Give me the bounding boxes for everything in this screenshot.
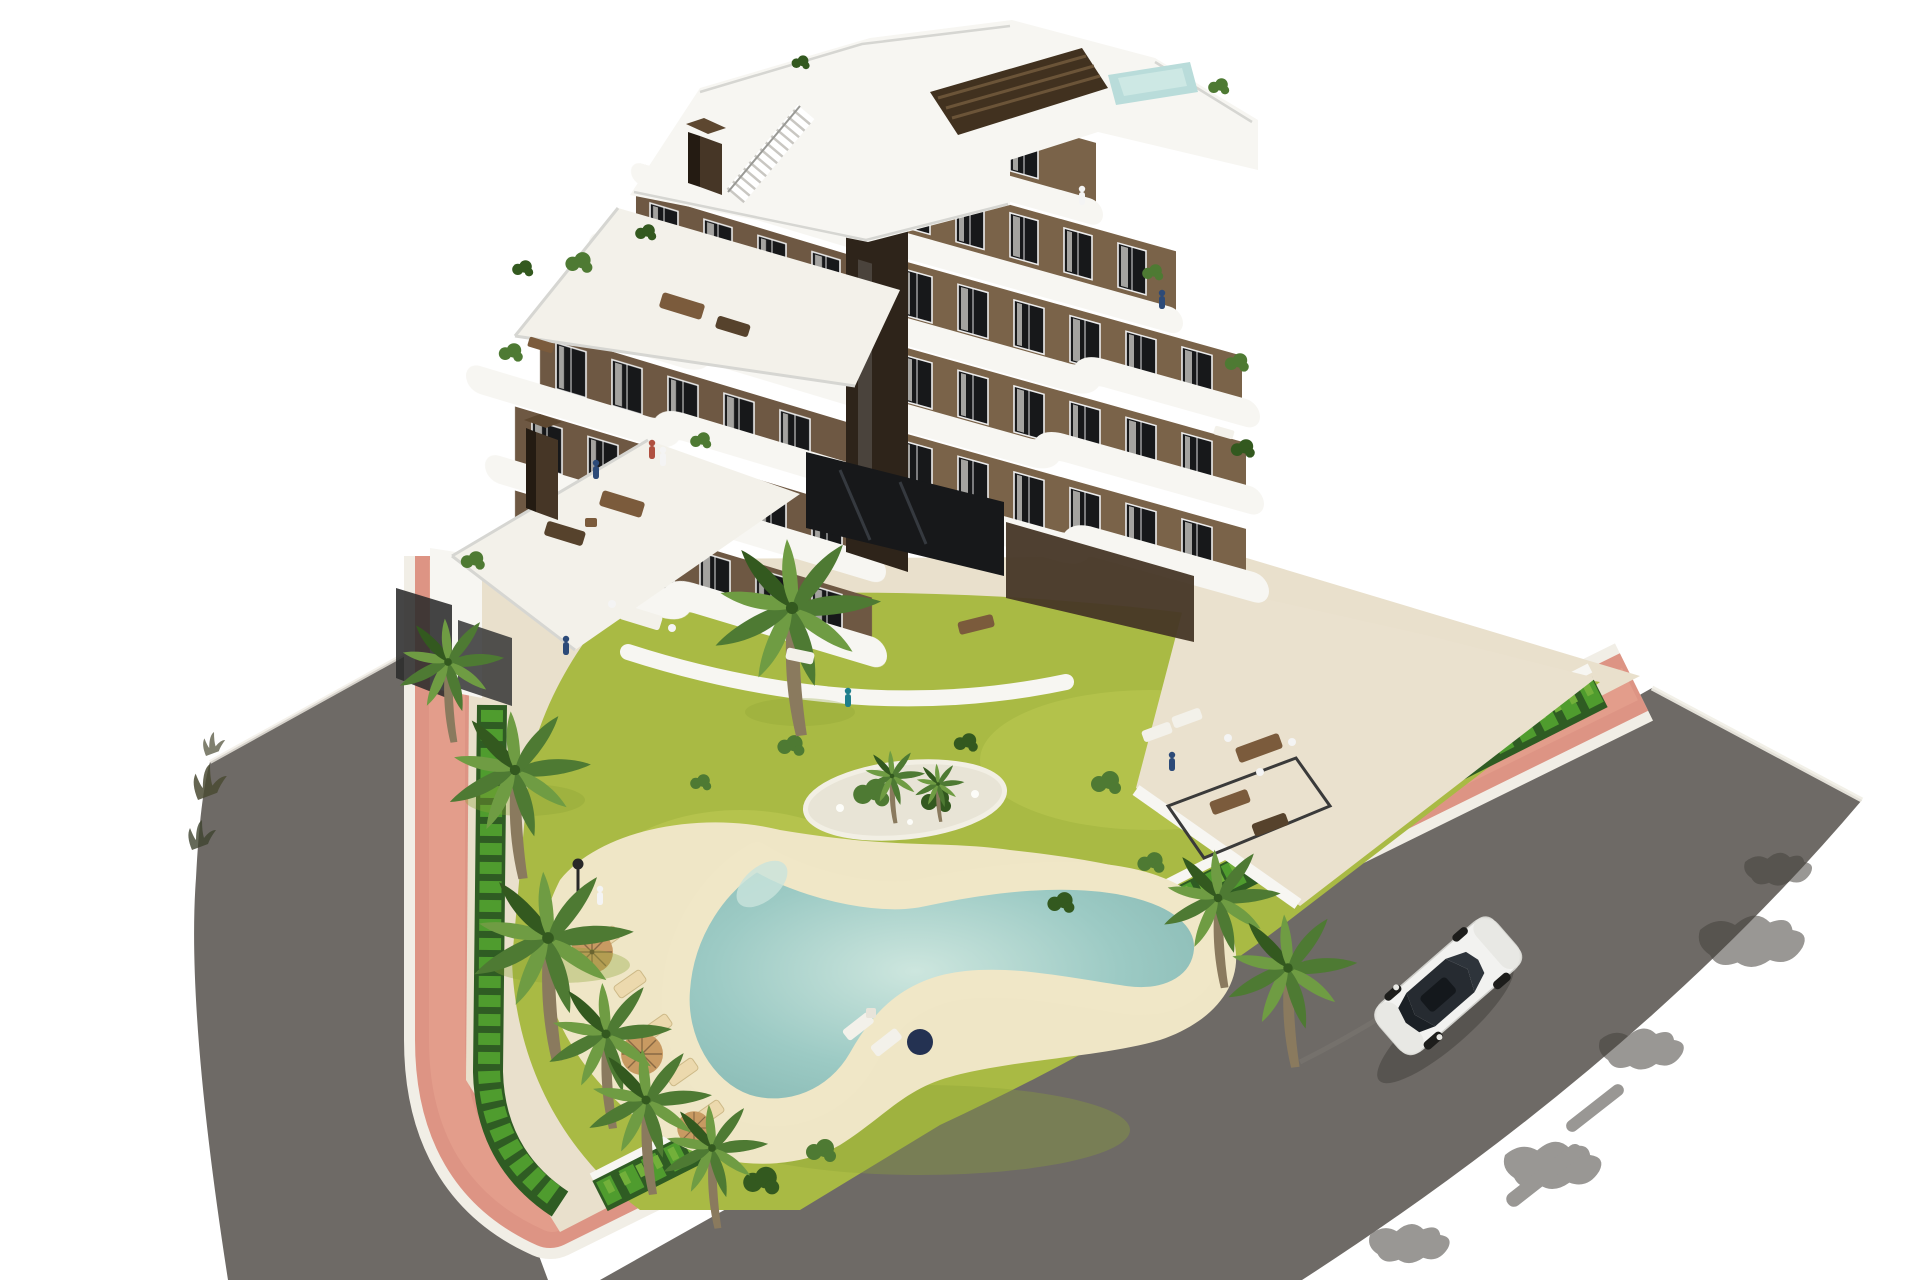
chair	[1288, 738, 1296, 746]
window-curtain	[1017, 389, 1024, 433]
person	[593, 460, 599, 479]
window-curtain	[1017, 475, 1022, 524]
architectural-rendering	[0, 0, 1920, 1280]
chair	[668, 624, 676, 632]
person	[597, 886, 603, 905]
parasol	[907, 1029, 933, 1055]
chimney	[526, 428, 536, 512]
roof-deck	[630, 20, 1258, 242]
coffee-table	[585, 518, 597, 527]
window-curtain	[1121, 246, 1128, 288]
window-curtain	[1073, 318, 1080, 362]
person	[660, 447, 666, 466]
chair	[1256, 768, 1264, 776]
balcony-plant	[499, 343, 523, 361]
chimney	[688, 132, 700, 187]
chair	[1224, 734, 1232, 742]
rooftop	[630, 20, 1258, 242]
window-curtain	[1017, 303, 1022, 346]
window-curtain	[1067, 231, 1072, 272]
person	[845, 688, 851, 707]
balcony-plant	[512, 260, 533, 276]
render-canvas	[0, 0, 1920, 1280]
person	[1169, 752, 1175, 771]
window-curtain	[559, 346, 564, 390]
roof-plant	[1208, 78, 1229, 94]
person	[1159, 290, 1165, 309]
window-curtain	[1013, 216, 1020, 258]
person	[1079, 186, 1085, 205]
chimney	[700, 136, 722, 195]
window-curtain	[961, 373, 966, 416]
lamp-head	[573, 859, 583, 869]
chair	[608, 600, 616, 608]
chimney	[536, 432, 558, 520]
window-curtain	[615, 362, 622, 406]
window-curtain	[961, 287, 968, 331]
person	[563, 636, 569, 655]
person	[649, 440, 655, 459]
weed-tuft	[203, 732, 225, 756]
side-table	[866, 1008, 876, 1018]
